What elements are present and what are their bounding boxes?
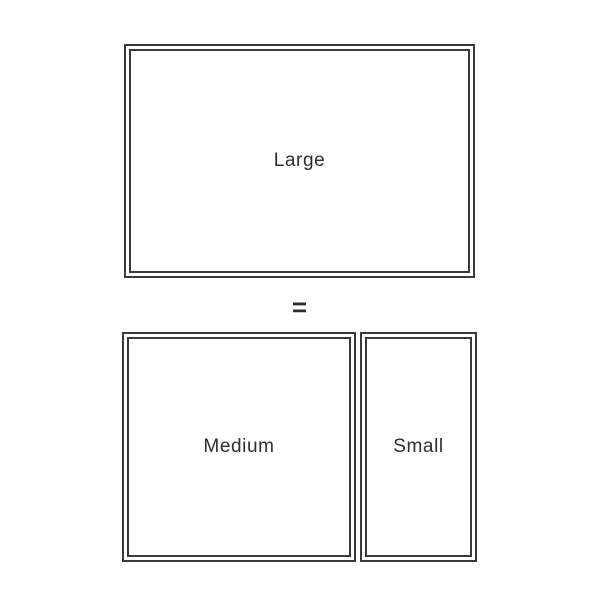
diagram-canvas: Large = Medium Small (0, 0, 600, 600)
medium-box: Medium (122, 332, 356, 562)
medium-box-label: Medium (203, 436, 274, 458)
small-box-label: Small (393, 436, 444, 458)
large-box: Large (124, 44, 475, 278)
large-box-label: Large (274, 150, 326, 172)
equals-sign: = (122, 291, 477, 324)
medium-box-inner-frame: Medium (127, 337, 351, 557)
large-box-inner-frame: Large (129, 49, 470, 273)
small-box-inner-frame: Small (365, 337, 472, 557)
small-box: Small (360, 332, 477, 562)
